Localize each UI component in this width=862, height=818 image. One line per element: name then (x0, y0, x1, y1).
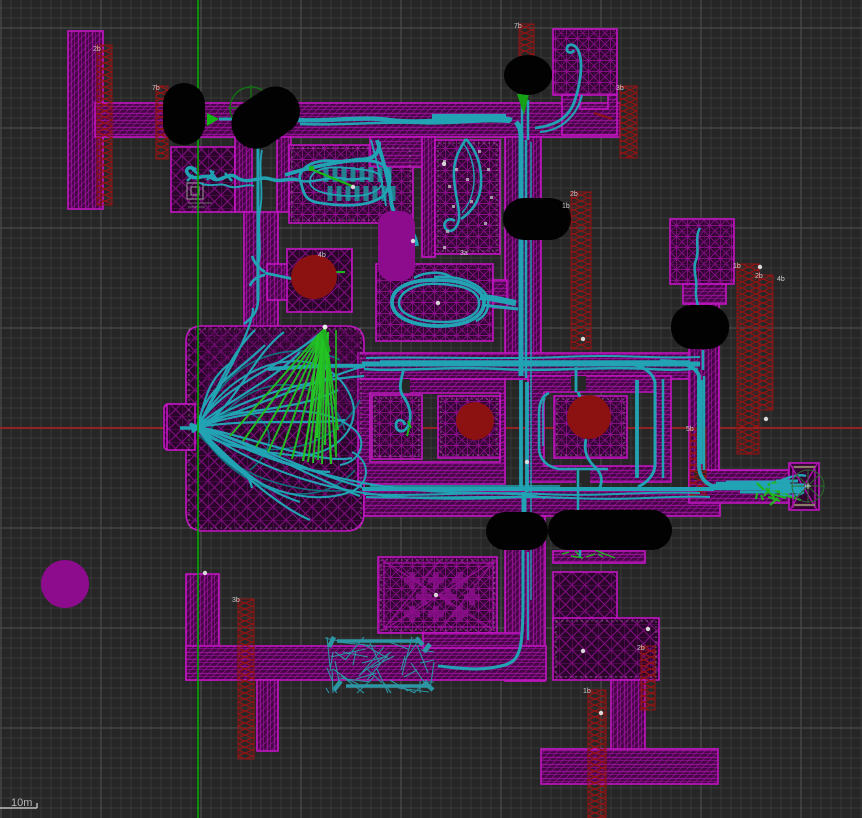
svg-text:2b: 2b (637, 645, 645, 652)
svg-text:2b: 2b (755, 273, 763, 280)
svg-text:1b: 1b (562, 203, 570, 210)
svg-text:7b: 7b (514, 23, 522, 30)
svg-text:7b: 7b (152, 85, 160, 92)
svg-text:1b: 1b (583, 688, 591, 695)
svg-text:2b: 2b (93, 46, 101, 53)
svg-text:4b: 4b (777, 276, 785, 283)
svg-text:5b: 5b (686, 426, 694, 433)
svg-text:1b: 1b (733, 263, 741, 270)
svg-text:2b: 2b (570, 191, 578, 198)
svg-text:3b: 3b (232, 597, 240, 604)
svg-text:4b: 4b (318, 252, 326, 259)
svg-text:3b: 3b (616, 85, 624, 92)
svg-text:10m: 10m (11, 797, 32, 809)
svg-text:3a: 3a (460, 250, 468, 257)
